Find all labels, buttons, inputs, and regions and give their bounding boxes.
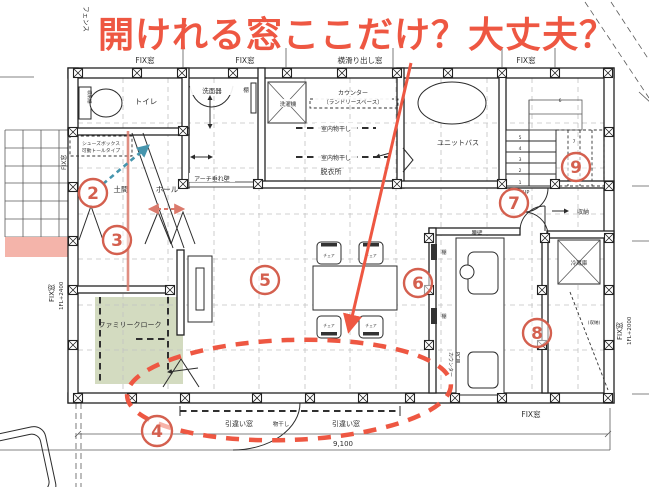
top-fix-1-label: FIX窓 xyxy=(135,55,155,65)
shelf-strip xyxy=(251,83,256,113)
sliding-2-label: 引違い窓 xyxy=(332,419,360,428)
drying-label-2: 室内物干し xyxy=(321,154,351,162)
top-fix-2-label: FIX窓 xyxy=(235,55,255,65)
svg-text:5: 5 xyxy=(259,271,271,291)
hall-label: ホール xyxy=(156,185,179,194)
tile-deck xyxy=(5,130,77,237)
hall-door-chevron-1 xyxy=(145,212,171,244)
wall-pantry-left xyxy=(542,238,548,393)
monohoshi-label: 物干し xyxy=(273,420,290,428)
wall-left xyxy=(68,68,78,403)
toilet-label: トイレ xyxy=(135,97,158,106)
family-cloak-label: ファミリークローク xyxy=(99,321,162,329)
circled-number-2: 2 xyxy=(79,179,107,207)
pantry-diagonal xyxy=(570,292,608,390)
counter-label-2: （ランドリースペース） xyxy=(323,99,383,106)
stairs-run xyxy=(506,130,556,186)
chair: チェア xyxy=(359,316,383,338)
sliding-1-label: 引違い窓 xyxy=(225,419,253,428)
left-fix-height-label: 1FL+2400 xyxy=(59,281,65,310)
kitchen-shelf-label-2: 棚 xyxy=(441,313,446,320)
stair-num-1: 1 xyxy=(519,180,522,186)
svg-text:2: 2 xyxy=(87,184,99,204)
svg-text:7: 7 xyxy=(508,194,520,214)
toilet-bowl xyxy=(90,89,122,117)
left-fix-label: FIX窓 xyxy=(47,284,56,302)
stair-num-4: 4 xyxy=(519,146,522,152)
floor-plan-svg: フェンス FIX窓 FIX窓 横滑り出し窓 FIX窓 トイレ 収納棚 シューズボ… xyxy=(0,0,649,487)
hall-door-chevron-2 xyxy=(171,212,195,244)
circled-number-4: 4 xyxy=(142,416,172,446)
svg-text:6: 6 xyxy=(412,274,424,294)
wall-tv-stub xyxy=(177,250,184,335)
doma-label: 土間 xyxy=(114,184,129,194)
washer-label: 洗濯機 xyxy=(280,100,297,108)
chair: チェア xyxy=(317,316,341,338)
unit-bath-label: ユニットバス xyxy=(437,139,479,147)
chair: チェア xyxy=(317,242,341,264)
toilet-storage-label: 収納棚 xyxy=(86,90,93,104)
stairs-upper xyxy=(529,100,582,130)
svg-text:8: 8 xyxy=(531,324,543,344)
pantry-label: (収納) xyxy=(588,319,601,326)
dressing-room-label: 脱衣所 xyxy=(321,167,342,176)
wall-stairs-left xyxy=(499,68,506,188)
wall-bottom xyxy=(68,393,614,403)
closet-label: 収納 xyxy=(577,208,589,216)
shoes-box-label-2: 可動トールタイプ xyxy=(82,147,121,154)
wall-cloak-top xyxy=(68,286,168,293)
circled-number-6: 6 xyxy=(404,269,432,297)
green-zone xyxy=(95,297,183,384)
washbasin-label: 洗面器 xyxy=(202,86,222,95)
wall-bath-left xyxy=(397,68,404,188)
tv-panel xyxy=(196,268,204,310)
top-awning-label: 横滑り出し窓 xyxy=(338,55,383,65)
svg-text:チェア: チェア xyxy=(365,323,377,328)
stair-num-2: 2 xyxy=(519,168,522,174)
circled-number-8: 8 xyxy=(523,319,551,347)
entrance-door-chevron xyxy=(79,206,103,240)
shelf-label: 棚 xyxy=(243,86,249,94)
bathtub xyxy=(418,82,486,124)
svg-text:チェア: チェア xyxy=(323,323,335,328)
svg-text:3: 3 xyxy=(111,231,123,251)
svg-text:チェア: チェア xyxy=(323,253,335,258)
car xyxy=(0,424,58,487)
fridge-label: 冷蔵庫 xyxy=(571,259,588,267)
kitchen-shelf-mark-2 xyxy=(431,308,437,324)
closet-door-arc-2 xyxy=(524,212,548,234)
pc-counter-label-1: PC用 xyxy=(454,352,460,364)
arch-wall-label: アーチ垂れ壁 xyxy=(194,175,230,183)
counter-label-1: カウンター xyxy=(338,89,368,97)
top-fix-3-label: FIX窓 xyxy=(516,55,536,65)
circled-number-9: 9 xyxy=(562,153,590,181)
kitchen-stove xyxy=(468,352,498,388)
circled-number-7: 7 xyxy=(500,189,528,217)
pink-zone xyxy=(5,237,77,257)
svg-text:4: 4 xyxy=(151,422,163,442)
headline-annotation: 開けれる窓ここだけ？大丈夫？ xyxy=(98,15,616,56)
circled-number-3: 3 xyxy=(103,226,131,254)
half-wall-label: 腰壁 xyxy=(471,229,483,237)
drying-label-1: 室内物干し xyxy=(321,125,351,133)
sink-bowl xyxy=(460,265,474,279)
wall-washroom-right xyxy=(258,68,265,185)
dining-set: チェア チェア チェア チェア xyxy=(313,242,397,338)
bottom-fix-label: FIX窓 xyxy=(521,409,541,419)
chair: チェア xyxy=(359,242,383,264)
fence-diagonal-2 xyxy=(611,2,649,60)
circled-number-5: 5 xyxy=(251,266,279,294)
svg-text:9: 9 xyxy=(570,158,582,178)
stair-num-6: 6 xyxy=(559,98,562,104)
floor-plan-canvas: フェンス FIX窓 FIX窓 横滑り出し窓 FIX窓 トイレ 収納棚 シューズボ… xyxy=(0,0,649,487)
fence-label: フェンス xyxy=(82,6,90,32)
stair-num-7: 7 xyxy=(573,139,576,145)
kitchen-shelf-mark-1 xyxy=(431,244,437,260)
left-fix-upper-label: FIX窓 xyxy=(60,155,68,170)
shoes-box-label-1: シューズボックス xyxy=(82,140,120,147)
stair-num-3: 3 xyxy=(519,157,522,163)
kitchen-shelf-label-1: 棚 xyxy=(441,249,446,256)
dimension-width-label: 9,100 xyxy=(333,440,353,448)
stair-num-5: 5 xyxy=(519,135,522,141)
right-fix-label: FIX窓 xyxy=(615,322,624,340)
right-fix-height-label: 1FL+2000 xyxy=(627,316,633,345)
